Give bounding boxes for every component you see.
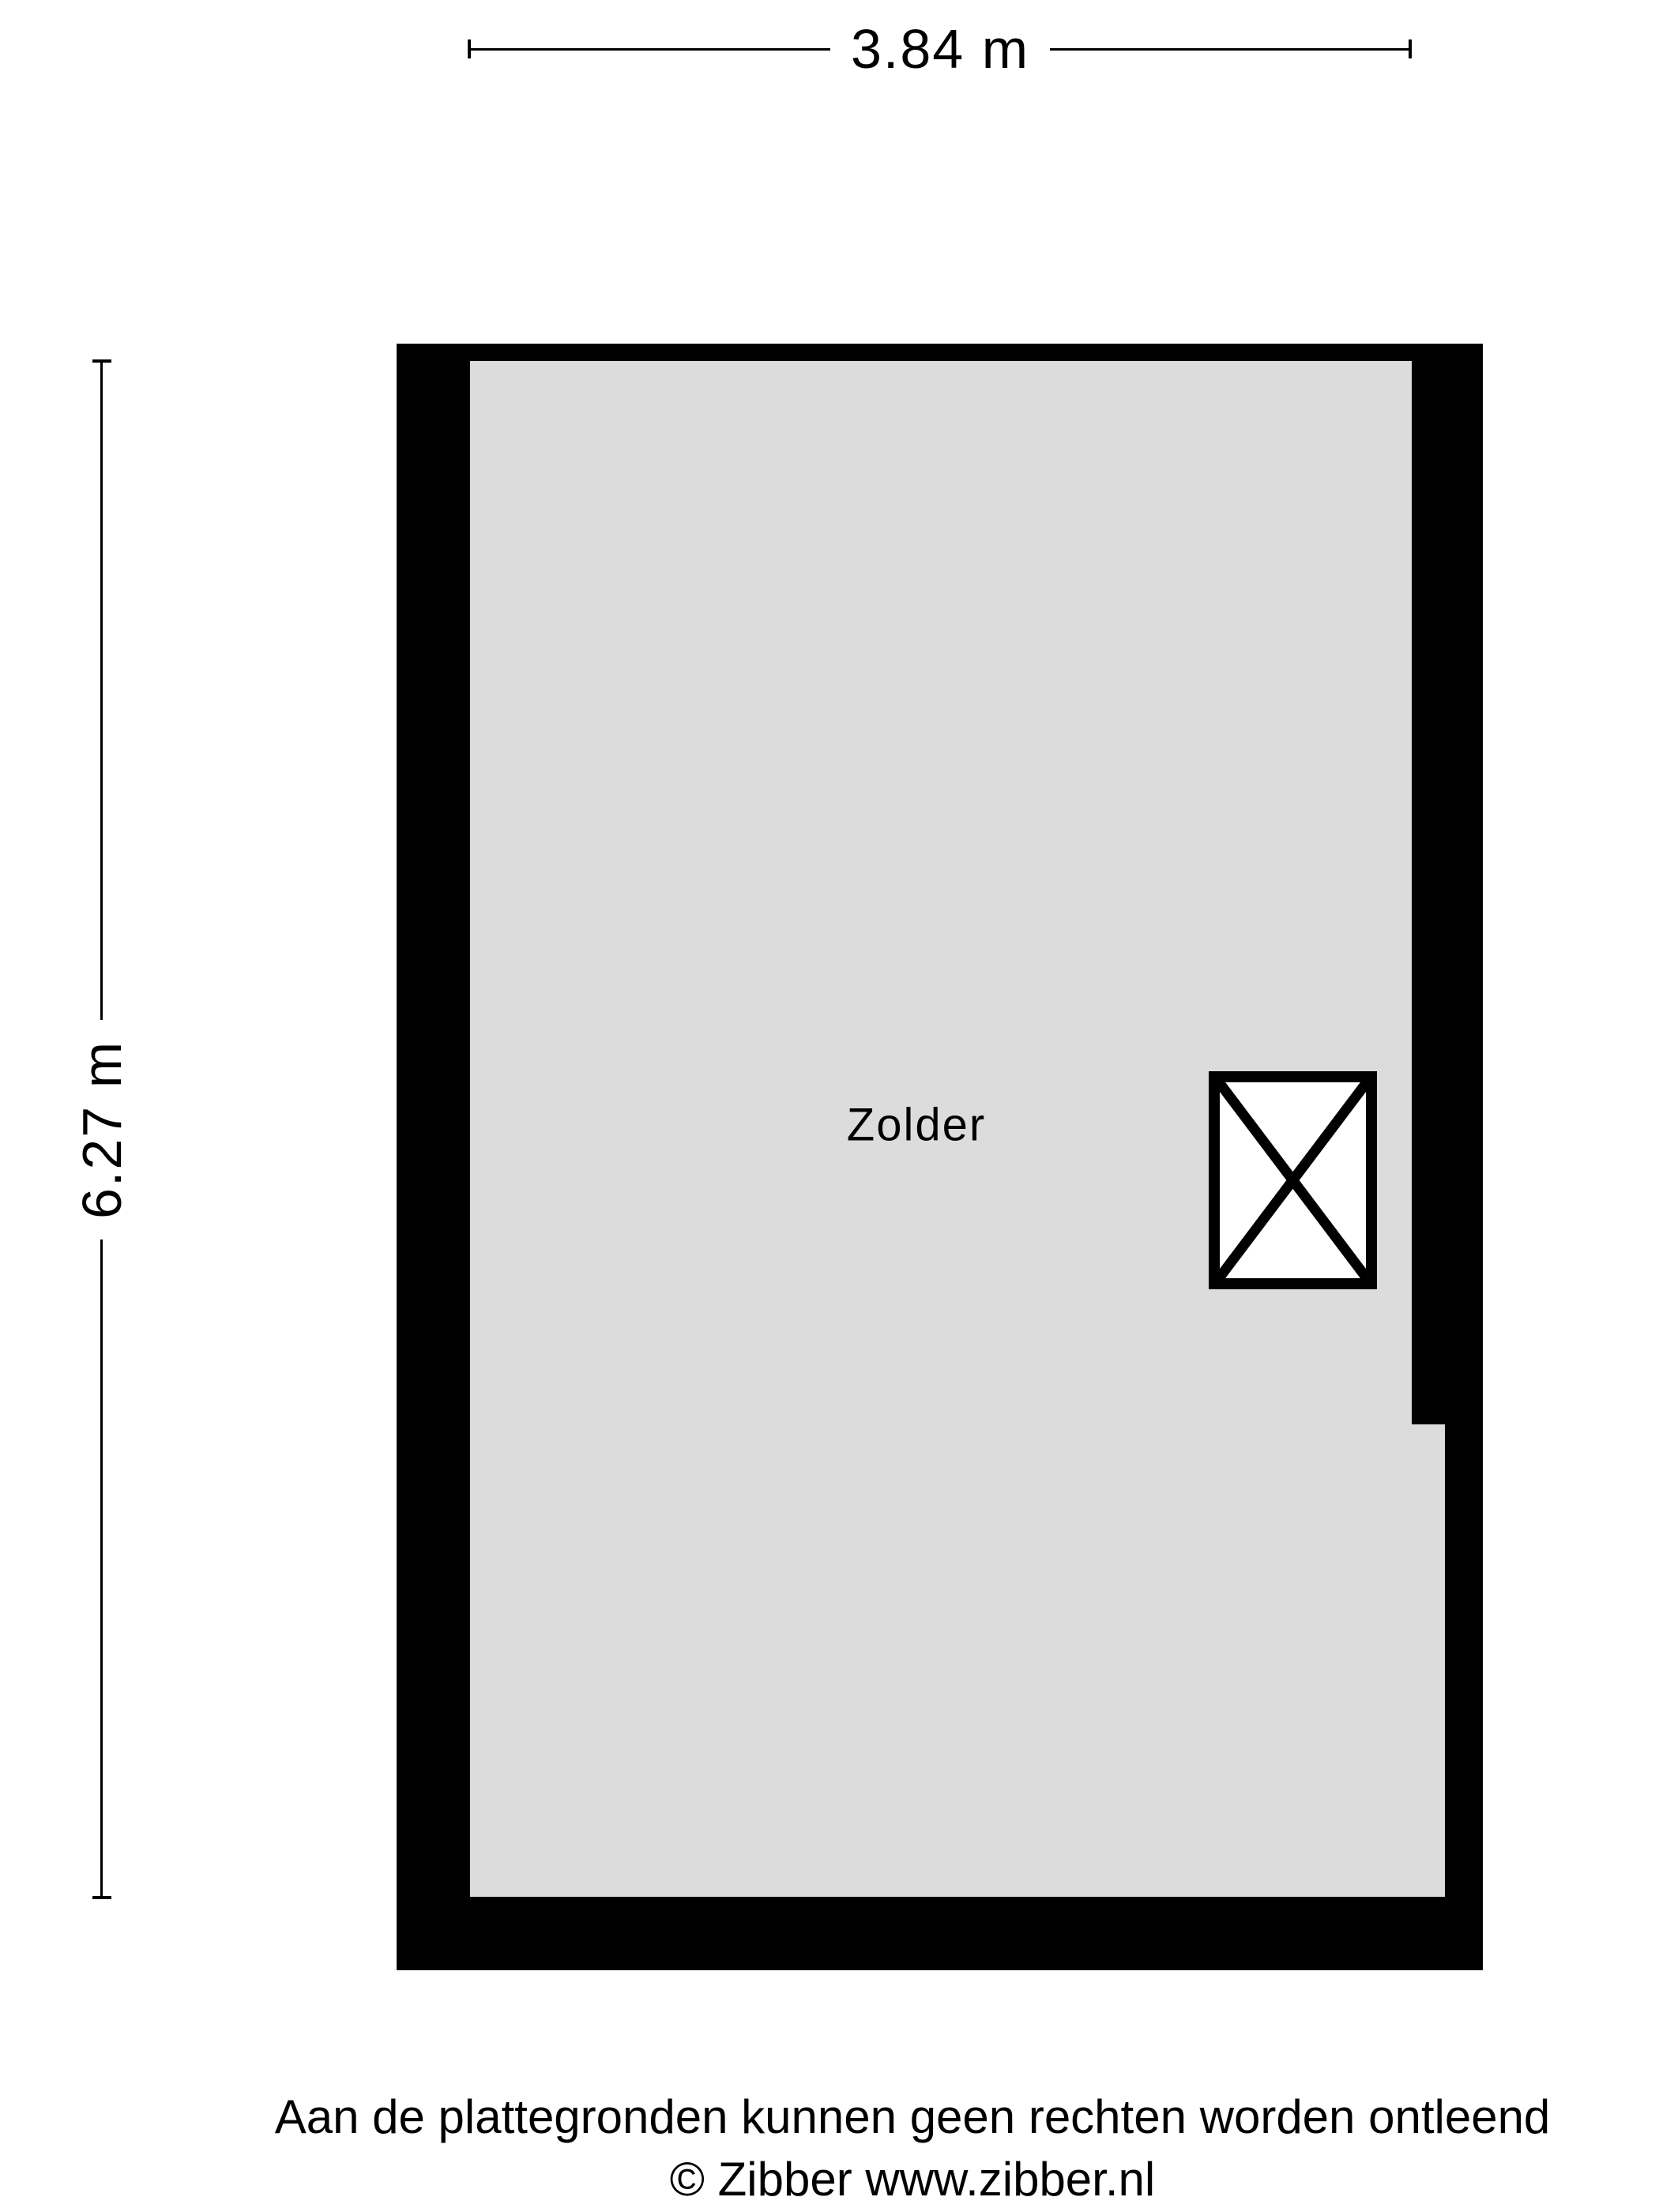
height-dimension-label: 6.27 m bbox=[66, 1020, 138, 1240]
room-name-label: Zolder bbox=[847, 1099, 986, 1152]
width-dimension-label: 3.84 m bbox=[830, 13, 1050, 85]
floorplan-page: 3.84 m 6.27 m Zolder Aan de plattegronde… bbox=[0, 0, 1659, 2212]
attic-floor-notch bbox=[1412, 1424, 1445, 1897]
copyright-text: © Zibber www.zibber.nl bbox=[275, 2148, 1551, 2210]
width-dimension-tick-right bbox=[1409, 39, 1412, 58]
height-dimension-tick-bottom bbox=[92, 1896, 111, 1899]
width-dimension-tick-left bbox=[468, 39, 471, 58]
stair-opening-icon bbox=[1209, 1071, 1377, 1289]
height-dimension-tick-top bbox=[92, 359, 111, 363]
disclaimer-text: Aan de plattegronden kunnen geen rechten… bbox=[275, 2086, 1551, 2148]
footer: Aan de plattegronden kunnen geen rechten… bbox=[275, 2086, 1551, 2210]
